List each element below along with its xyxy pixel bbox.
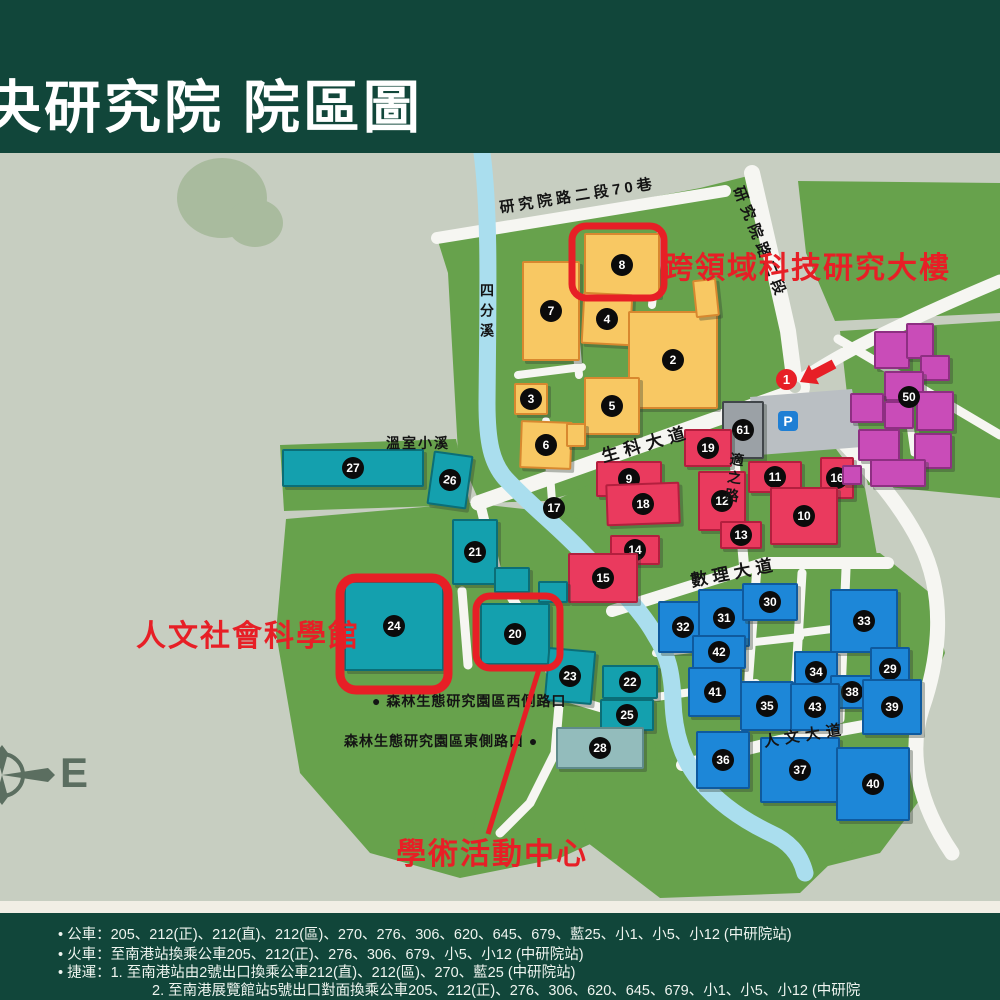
building-number: 30 (759, 591, 781, 613)
building-number: 61 (732, 419, 754, 441)
parking-lot (750, 389, 862, 455)
building-number: 19 (697, 437, 719, 459)
annotation-cross-domain-building: 跨領域科技研究大樓 (663, 243, 951, 287)
annotation-activity-center: 學術活動中心 (396, 829, 588, 873)
building (538, 581, 568, 603)
campus-map-screen: E P 1 跨領域科技研究大樓 人文社會科學館 學術活動中心 784235661… (0, 0, 1000, 1000)
map-label: ● 森林生態研究園區西側路口 (372, 691, 566, 711)
building-number: 11 (764, 466, 786, 488)
area-number-17: 17 (543, 497, 565, 519)
footer-metro-line-2: 2. 至南港展覽館站5號出口對面換乘公車205、212(正)、276、306、6… (152, 979, 860, 1000)
building-number: 36 (712, 749, 734, 771)
footer-bus-line: • 公車：205、212(正)、212(直)、212(區)、270、276、30… (58, 923, 792, 944)
annotation-humanities-building: 人文社會科學館 (136, 611, 360, 655)
transit-info-footer: • 公車：205、212(正)、212(直)、212(區)、270、276、30… (0, 913, 1000, 1000)
parking-icon: P (778, 411, 798, 431)
building-number: 37 (789, 759, 811, 781)
building-number: 33 (853, 610, 875, 632)
divider-strip (0, 901, 1000, 913)
gate-marker-1: 1 (776, 369, 797, 390)
building-number: 21 (464, 541, 486, 563)
map-label: 森林生態研究園區東側路口 ● (344, 731, 538, 751)
building-13: 13 (720, 521, 762, 549)
building-42: 42 (692, 635, 746, 669)
building-number: 24 (383, 615, 405, 637)
building (842, 465, 862, 485)
building-2: 2 (628, 311, 718, 409)
building-number: 28 (589, 737, 611, 759)
building (906, 323, 934, 359)
building-number: 2 (662, 349, 684, 371)
building-36: 36 (696, 731, 750, 789)
building-21: 21 (452, 519, 498, 585)
building-number: 5 (601, 395, 623, 417)
area-number-50: 50 (898, 386, 920, 408)
building-number: 18 (632, 493, 655, 516)
building-5: 5 (584, 377, 640, 435)
page-title: 中央研究院 院區圖 (0, 62, 423, 144)
building-number: 4 (595, 307, 618, 330)
building-number: 35 (756, 695, 778, 717)
building-33: 33 (830, 589, 898, 653)
building-27: 27 (282, 449, 424, 487)
building-number: 20 (504, 623, 526, 645)
map-label: 溫室小溪 (386, 433, 450, 453)
building-number: 3 (520, 388, 542, 410)
building-number: 15 (592, 567, 614, 589)
building-10: 10 (770, 487, 838, 545)
building-number: 23 (558, 664, 582, 688)
building-4: 4 (581, 292, 634, 347)
page-header: 中央研究院 院區圖 (0, 0, 1000, 153)
tree-area (227, 199, 283, 247)
building-number: 43 (804, 696, 826, 718)
building-41: 41 (688, 667, 742, 717)
building-number: 10 (793, 505, 815, 527)
building-number: 26 (438, 468, 463, 493)
building-20: 20 (480, 603, 550, 665)
building-number: 29 (879, 658, 901, 680)
building-number: 34 (805, 661, 827, 683)
building-3: 3 (514, 383, 548, 415)
compass-east-label: E (60, 749, 88, 797)
building-8: 8 (584, 233, 660, 297)
building-number: 41 (704, 681, 726, 703)
building-26: 26 (426, 450, 473, 509)
building (494, 567, 530, 593)
building-number: 42 (708, 641, 730, 663)
building-number: 6 (535, 434, 558, 457)
building-39: 39 (862, 679, 922, 735)
building-30: 30 (742, 583, 798, 621)
building (850, 393, 884, 423)
building (920, 355, 950, 381)
building (858, 429, 900, 461)
building (916, 391, 954, 431)
building-18: 18 (605, 482, 680, 527)
building-7: 7 (522, 261, 580, 361)
building-22: 22 (602, 665, 658, 699)
building-35: 35 (740, 681, 794, 731)
building-number: 25 (616, 704, 638, 726)
building-number: 39 (881, 696, 903, 718)
map-label: 四分溪 (477, 283, 497, 343)
building-number: 40 (862, 773, 884, 795)
building-40: 40 (836, 747, 910, 821)
building-number: 7 (540, 300, 562, 322)
building (566, 423, 586, 447)
building-number: 38 (841, 681, 863, 703)
building (874, 331, 910, 369)
building-15: 15 (568, 553, 638, 603)
building (870, 459, 926, 487)
building-28: 28 (556, 727, 644, 769)
building-6: 6 (519, 420, 573, 470)
building-number: 27 (342, 457, 364, 479)
building-number: 8 (611, 254, 633, 276)
building-number: 13 (730, 524, 752, 546)
building-number: 22 (619, 671, 641, 693)
map-area: E P 1 跨領域科技研究大樓 人文社會科學館 學術活動中心 784235661… (0, 153, 1000, 901)
building-number: 32 (672, 616, 694, 638)
building-number: 31 (713, 607, 735, 629)
